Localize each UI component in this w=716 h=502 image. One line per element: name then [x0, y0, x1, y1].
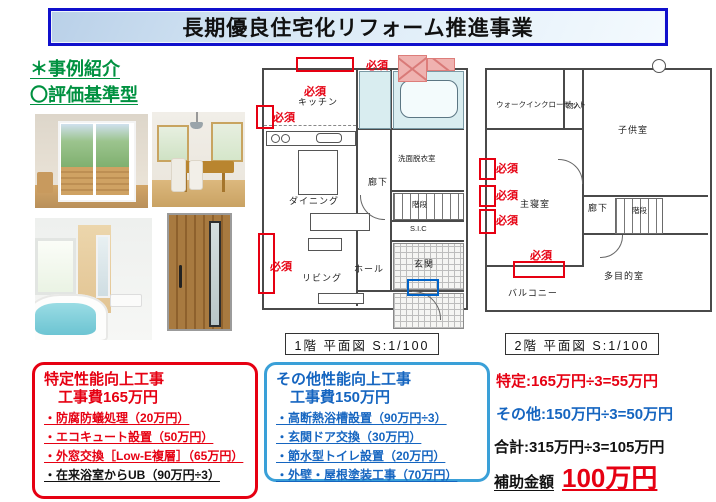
bath-mirror — [96, 235, 111, 298]
required-window-highlight — [479, 185, 496, 207]
kitchen-sink — [316, 133, 342, 143]
room-label-washroom: 洗面脱衣室 — [398, 153, 436, 164]
room-label-kids-room: 子供室 — [618, 123, 648, 136]
stove-burner — [281, 134, 290, 143]
plan2-caption: 2階 平面図 S:1/100 — [505, 333, 659, 355]
living-side-table — [37, 172, 53, 193]
subsidy-label: 補助金額 — [494, 474, 554, 491]
specific-work-item: ・在来浴室からUB（90万円÷3） — [44, 466, 247, 485]
required-label: 必須 — [496, 160, 518, 176]
dining-chair-2 — [189, 160, 203, 191]
room-label-living: リビング — [302, 271, 342, 284]
living-door-mullion — [93, 123, 96, 195]
floor-plan-1f: キッチン ダイニング リビング 洗面脱衣室 廊下 階段 S.I.C 玄関 ホール… — [258, 55, 470, 333]
bathtub-symbol — [400, 80, 458, 118]
required-window-highlight — [296, 57, 354, 72]
floor-plan-2f: ウォークインクローゼット 物入 子供室 主寝室 廊下 階段 多目的室 バルコニー… — [480, 55, 714, 333]
specific-works-cost: 工事費165万円 — [44, 389, 247, 407]
stairs-1f — [393, 193, 464, 220]
required-label: 必須 — [496, 212, 518, 228]
required-area-highlight — [427, 58, 455, 71]
bath-window — [35, 238, 76, 295]
intro-line-case: ＊事例紹介 — [30, 56, 138, 82]
other-work-item: ・玄関ドア交換（30万円） — [276, 428, 479, 447]
sofa-symbol — [310, 213, 370, 231]
required-label: 必須 — [270, 258, 292, 274]
room-label-stairs-2f: 階段 — [632, 205, 647, 216]
other-works-cost: 工事費150万円 — [276, 389, 479, 407]
room-label-storage: 物入 — [566, 100, 581, 111]
entrance-door-highlight — [407, 279, 439, 296]
summary-total: 合計:315万円÷3=105万円 — [494, 436, 664, 457]
required-window-highlight — [256, 105, 274, 129]
tv-board-symbol — [318, 293, 364, 304]
other-work-item: ・外壁・屋根塗装工事（70万円） — [276, 466, 479, 485]
photo-dining-room — [152, 112, 245, 207]
specific-work-item: ・エコキュート設置（50万円） — [44, 428, 247, 447]
wall-line — [563, 68, 565, 128]
photo-living-room — [35, 114, 148, 208]
intro-text: ＊事例紹介 〇評価基準型 — [30, 56, 138, 108]
room-label-hallway: 廊下 — [368, 175, 388, 188]
stove-burner — [271, 134, 280, 143]
wall-line — [582, 68, 584, 265]
corner-post-symbol — [652, 59, 666, 73]
dining-table — [180, 161, 234, 172]
summary-subsidy: 補助金額100万円 — [494, 458, 657, 495]
dining-table-symbol — [298, 150, 338, 195]
required-window-highlight — [479, 158, 496, 180]
plan2-caption-text: 2階 平面図 S:1/100 — [515, 335, 650, 354]
wall-line — [390, 240, 464, 242]
dining-window-left — [157, 125, 189, 161]
required-label: 必須 — [304, 83, 326, 99]
room-label-dining: ダイニング — [289, 194, 339, 207]
plan1-caption-text: 1階 平面図 S:1/100 — [295, 335, 430, 354]
photo-bathroom — [35, 218, 152, 340]
dining-lamp-shade — [190, 122, 203, 129]
other-work-item: ・節水型トイレ設置（20万円） — [276, 447, 479, 466]
subsidy-amount: 100万円 — [562, 463, 657, 493]
required-window-highlight — [513, 261, 565, 278]
room-label-entrance: 玄関 — [414, 257, 434, 270]
stairs-2f — [615, 198, 663, 234]
other-works-box: その他性能向上工事 工事費150万円 ・高断熱浴槽設置（90万円÷3） ・玄関ド… — [264, 362, 490, 482]
summary-specific: 特定:165万円÷3=55万円 — [496, 370, 658, 391]
room-label-hall: ホール — [354, 262, 384, 275]
required-label: 必須 — [366, 57, 388, 73]
other-work-item: ・高断熱浴槽設置（90万円÷3） — [276, 409, 479, 428]
kitchen-boundary-dashed — [264, 125, 356, 126]
door-handle — [179, 265, 183, 288]
slide: 長期優良住宅化リフォーム推進事業 ＊事例紹介 〇評価基準型 — [0, 0, 716, 502]
required-label: 必須 — [273, 109, 295, 125]
page-title: 長期優良住宅化リフォーム推進事業 — [182, 12, 533, 42]
room-label-shoe-closet: S.I.C — [410, 224, 427, 233]
intro-line-type: 〇評価基準型 — [30, 82, 138, 108]
specific-work-item: ・防腐防蟻処理（20万円） — [44, 409, 247, 428]
room-label-master-bedroom: 主寝室 — [520, 197, 550, 210]
specific-work-item: ・外窓交換［Low-E複層］（65万円） — [44, 447, 247, 466]
specific-works-box: 特定性能向上工事 工事費165万円 ・防腐防蟻処理（20万円） ・エコキュート設… — [32, 362, 258, 499]
subsidy-summary: 特定:165万円÷3=55万円 その他:150万円÷3=50万円 合計:315万… — [492, 362, 714, 500]
bath-water — [35, 303, 96, 335]
photo-entrance-door — [167, 213, 232, 331]
toilet-room — [359, 71, 391, 129]
wall-line — [390, 220, 464, 222]
room-label-stairs: 階段 — [412, 199, 427, 210]
plan1-caption: 1階 平面図 S:1/100 — [285, 333, 439, 355]
other-works-title: その他性能向上工事 — [276, 371, 479, 389]
coffee-table-symbol — [308, 238, 342, 251]
specific-works-title: 特定性能向上工事 — [44, 371, 247, 389]
required-label: 必須 — [496, 187, 518, 203]
wall-line — [485, 128, 584, 130]
room-label-balcony: バルコニー — [508, 286, 558, 299]
title-banner: 長期優良住宅化リフォーム推進事業 — [48, 8, 668, 46]
dining-window-right — [211, 122, 244, 162]
wall-line — [390, 190, 464, 192]
door-glass-strip — [209, 221, 221, 328]
dining-chair-1 — [171, 158, 186, 192]
required-window-highlight — [479, 209, 496, 234]
summary-other: その他:150万円÷3=50万円 — [496, 403, 673, 424]
wall-line — [582, 195, 708, 197]
room-label-hallway-2f: 廊下 — [588, 201, 608, 214]
bath-bench — [110, 294, 142, 307]
room-label-multipurpose: 多目的室 — [604, 269, 644, 282]
required-area-highlight — [398, 55, 427, 82]
